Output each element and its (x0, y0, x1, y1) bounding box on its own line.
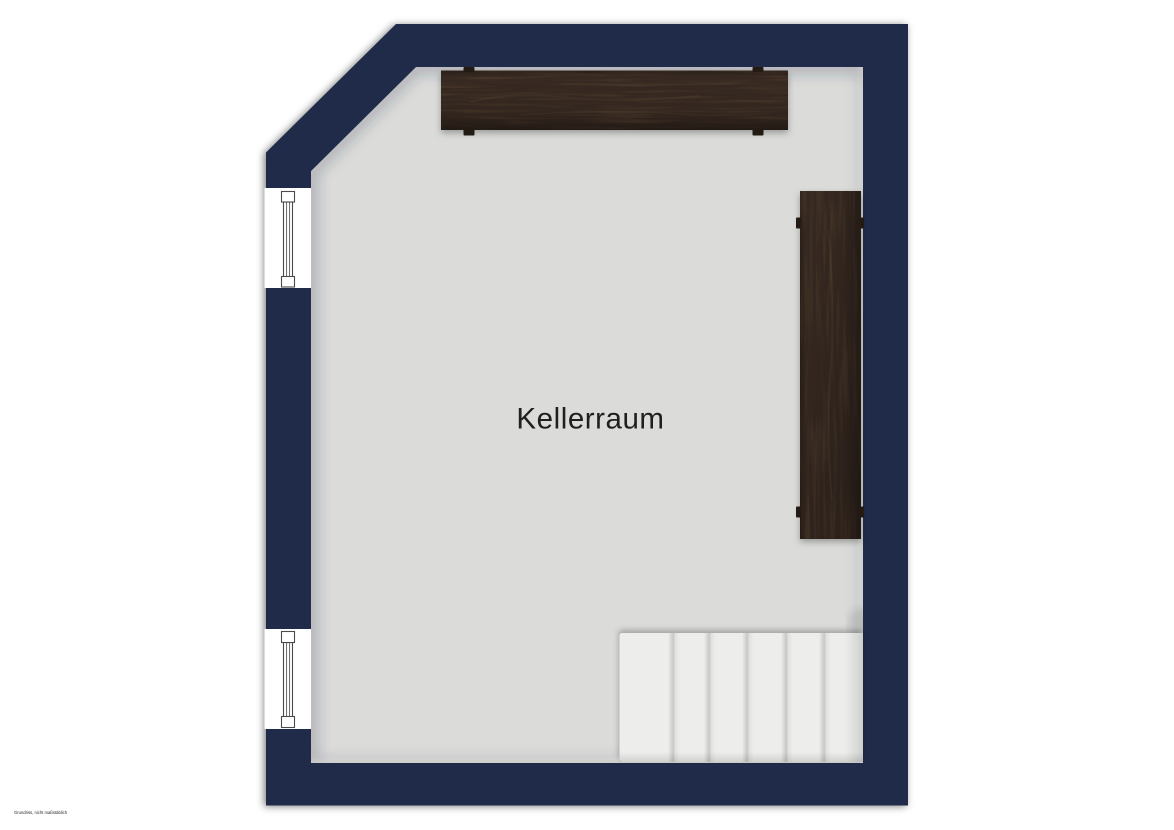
svg-text:Grundriss, nicht maßstäblich: Grundriss, nicht maßstäblich (14, 810, 68, 815)
svg-text:Kellerraum: Kellerraum (516, 403, 664, 436)
